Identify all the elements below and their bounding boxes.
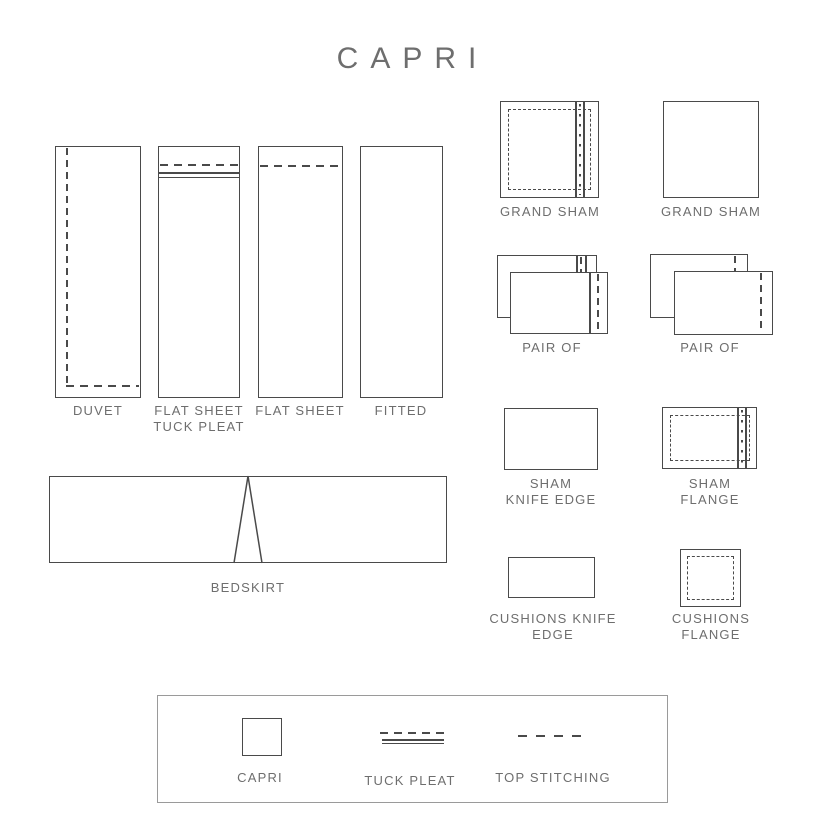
legend-tuck-pleat-dash-line	[380, 732, 446, 734]
cushions-knife-edge-diagram	[508, 557, 595, 598]
legend-capri-label: CAPRI	[185, 770, 335, 786]
duvet-top-stitching-bottom-line	[66, 385, 139, 387]
pair-right-label: PAIR OF	[635, 340, 785, 356]
flat-sheet-tuck-pleat-line-lower	[158, 177, 240, 179]
sham-flange-pleat-line-left	[737, 407, 739, 469]
pair-right-front-stitch-line	[760, 273, 762, 333]
legend-top-stitching-dash-line	[518, 735, 588, 737]
sham-flange-stitch-dots	[741, 410, 743, 466]
grand-sham-plain-label: GRAND SHAM	[636, 204, 786, 220]
pair-left-front-pleat-line	[589, 272, 591, 334]
duvet-top-stitching-left-line	[66, 148, 68, 386]
grand-sham-stitch-dots	[579, 104, 581, 195]
pair-left-front-sham	[510, 272, 608, 334]
flat-sheet-tuck-pleat-diagram	[158, 146, 240, 398]
legend-top-stitching-label: TOP STITCHING	[478, 770, 628, 786]
cushions-knife-edge-label: CUSHIONS KNIFE EDGE	[478, 611, 628, 642]
sham-knife-edge-label: SHAM KNIFE EDGE	[476, 476, 626, 507]
page-title: CAPRI	[0, 42, 825, 76]
legend-tuck-pleat-label: TUCK PLEAT	[335, 773, 485, 789]
legend-tuck-pleat-solid-line-lower	[382, 743, 444, 745]
pair-left-label: PAIR OF	[477, 340, 627, 356]
bedskirt-label: BEDSKIRT	[173, 580, 323, 596]
flat-sheet-tuck-top-stitching-line	[160, 164, 238, 166]
flat-sheet-diagram	[258, 146, 343, 398]
bedskirt-pleat-icon	[225, 476, 271, 563]
sham-knife-edge-diagram	[504, 408, 598, 470]
fitted-sheet-diagram	[360, 146, 443, 398]
pair-right-front-sham	[674, 271, 773, 335]
flat-sheet-tuck-pleat-line-upper	[158, 172, 240, 174]
sham-flange-pleat-line-right	[745, 407, 747, 469]
grand-sham-tuck-pleat-line-left	[575, 101, 577, 198]
cushions-flange-label: CUSHIONS FLANGE	[636, 611, 786, 642]
cushions-flange-stitching-rect	[687, 556, 734, 600]
legend-tuck-pleat-solid-line-upper	[382, 739, 444, 741]
sham-flange-label: SHAM FLANGE	[635, 476, 785, 507]
grand-sham-tuck-pleat-line-right	[583, 101, 585, 198]
fitted-label: FITTED	[326, 403, 476, 419]
flat-sheet-top-stitching-line	[260, 165, 341, 167]
pair-left-front-stitch-line	[597, 274, 599, 332]
legend-capri-swatch	[242, 718, 282, 756]
capri-bedding-diagram: CAPRI DUVET FLAT SHEET TUCK PLEAT FLAT S…	[0, 0, 825, 825]
grand-sham-plain-diagram	[663, 101, 759, 198]
grand-sham-flange-label: GRAND SHAM	[475, 204, 625, 220]
